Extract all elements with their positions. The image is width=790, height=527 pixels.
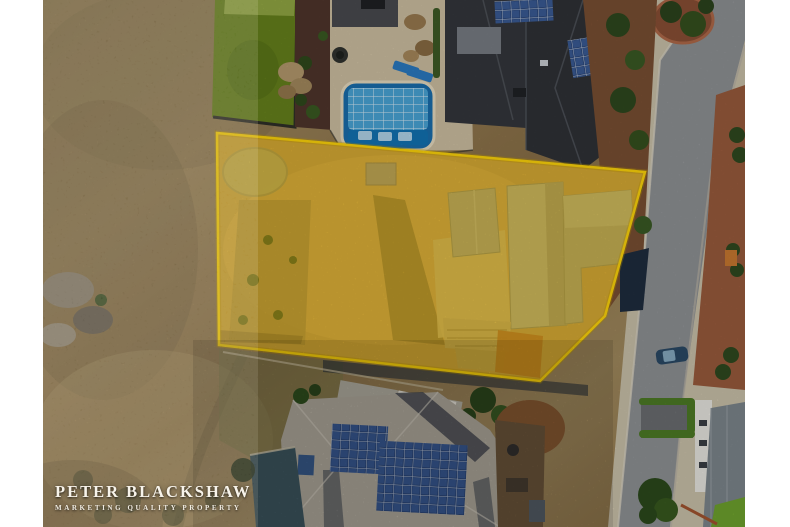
agency-name: PETER BLACKSHAW [55,484,251,501]
agency-logo: PETER BLACKSHAW MARKETING QUALITY PROPER… [55,484,251,512]
aerial-photo [43,0,745,527]
aerial-photo-canvas [43,0,745,527]
lower-grain [193,340,613,527]
agency-tagline: MARKETING QUALITY PROPERTY [55,505,251,512]
marketing-image: PETER BLACKSHAW MARKETING QUALITY PROPER… [0,0,790,527]
